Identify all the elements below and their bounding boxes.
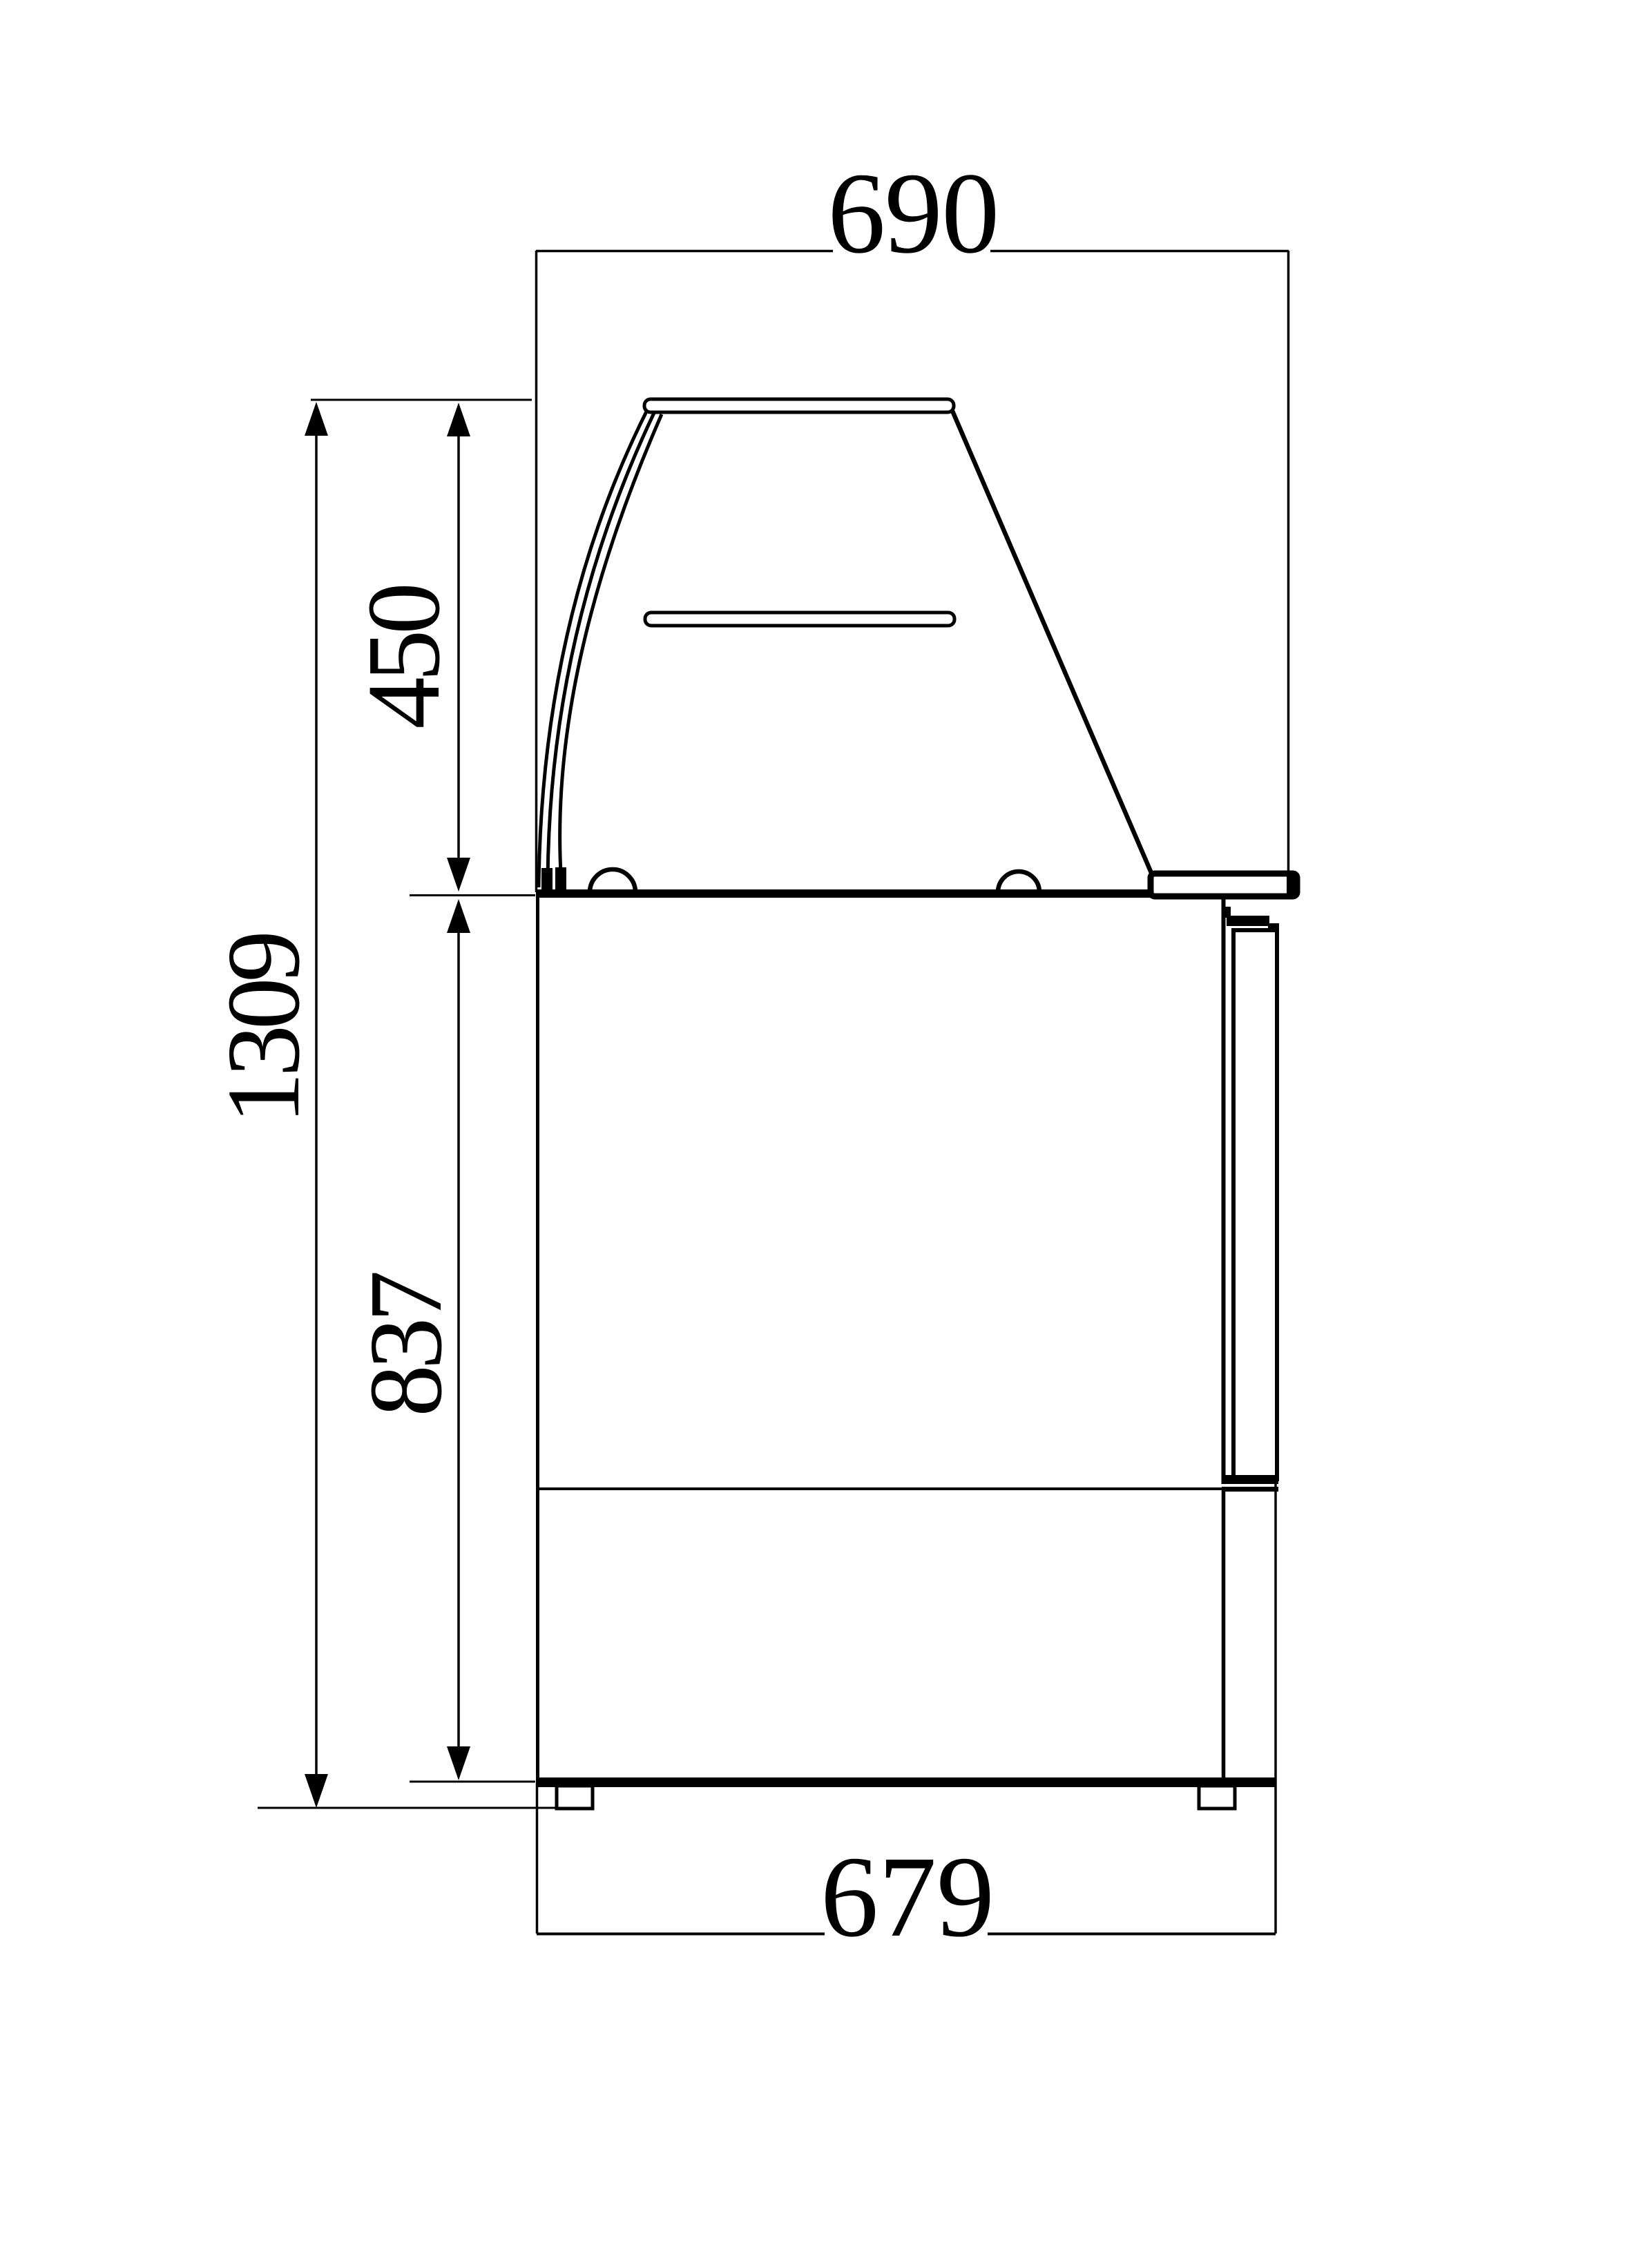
svg-text:450: 450 xyxy=(345,586,461,729)
svg-text:679: 679 xyxy=(820,1833,995,1961)
svg-text:690: 690 xyxy=(827,149,999,278)
svg-text:837: 837 xyxy=(347,1273,463,1417)
svg-text:1309: 1309 xyxy=(205,934,321,1125)
